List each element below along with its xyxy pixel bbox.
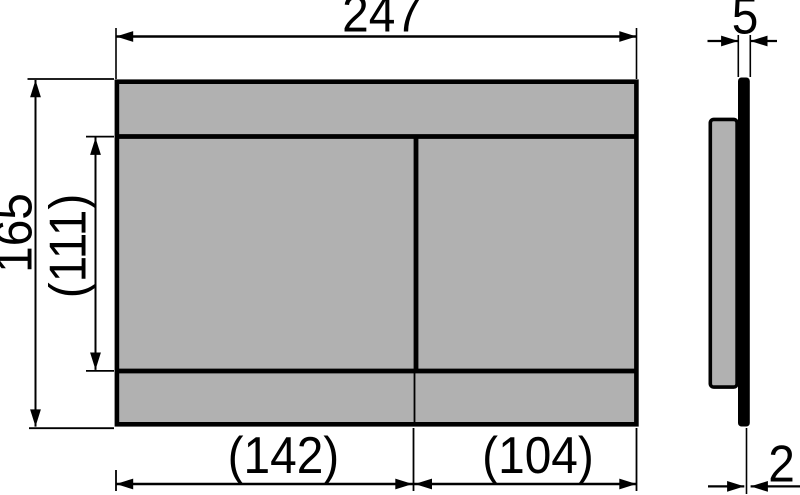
svg-text:2: 2 bbox=[768, 435, 795, 493]
svg-text:247: 247 bbox=[342, 0, 422, 43]
svg-text:(111): (111) bbox=[39, 194, 97, 299]
svg-text:(142): (142) bbox=[228, 426, 340, 484]
svg-text:(104): (104) bbox=[482, 426, 594, 484]
svg-text:5: 5 bbox=[732, 0, 759, 45]
svg-text:165: 165 bbox=[0, 193, 43, 273]
